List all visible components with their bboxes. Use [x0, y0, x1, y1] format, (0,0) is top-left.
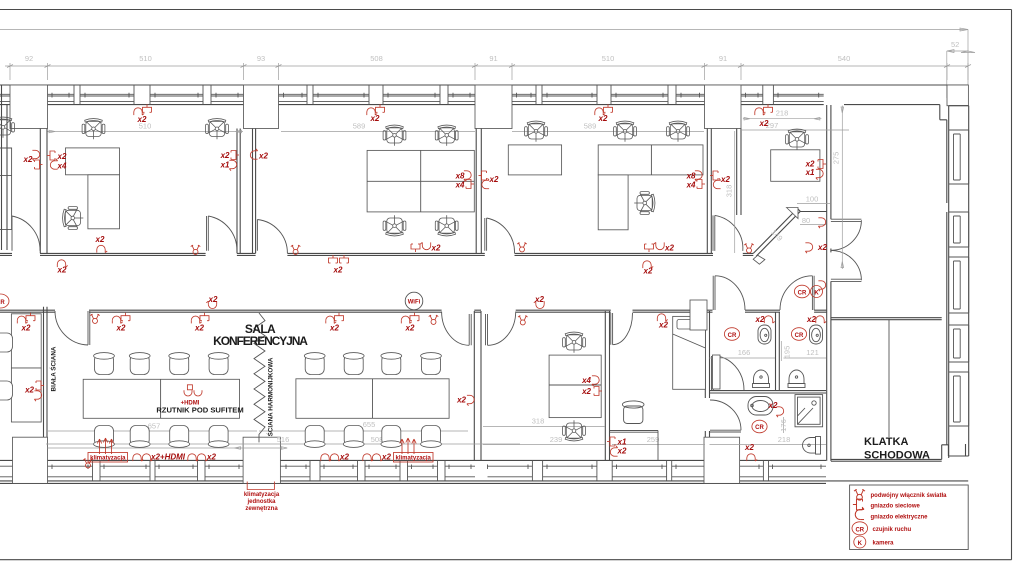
svg-text:176: 176: [779, 419, 788, 432]
svg-text:x2: x2: [720, 175, 730, 184]
svg-text:239: 239: [550, 435, 563, 444]
svg-text:318: 318: [725, 185, 734, 198]
svg-text:x2: x2: [329, 324, 339, 333]
svg-text:K: K: [814, 290, 819, 296]
svg-text:510: 510: [602, 54, 615, 63]
svg-text:gniazdo elektryczne: gniazdo elektryczne: [871, 515, 929, 521]
svg-text:CR: CR: [855, 527, 864, 533]
svg-text:195: 195: [783, 346, 792, 359]
svg-text:x2: x2: [768, 401, 778, 410]
svg-text:x2: x2: [208, 295, 218, 304]
svg-text:x2: x2: [759, 119, 769, 128]
svg-text:218: 218: [778, 435, 791, 444]
svg-text:x1: x1: [220, 161, 230, 170]
svg-text:czujnik ruchu: czujnik ruchu: [873, 527, 912, 533]
svg-text:CR: CR: [728, 333, 737, 339]
svg-text:x2+HDMI: x2+HDMI: [150, 453, 186, 462]
svg-text:x2: x2: [137, 115, 147, 124]
svg-text:92: 92: [25, 54, 33, 63]
svg-text:x2: x2: [744, 443, 754, 452]
svg-text:KONFERENCYJNA: KONFERENCYJNA: [213, 334, 308, 348]
svg-text:540: 540: [838, 54, 851, 63]
svg-text:x4: x4: [57, 162, 67, 171]
svg-text:x2: x2: [57, 152, 67, 161]
svg-text:gniazdo sieciowe: gniazdo sieciowe: [871, 504, 921, 510]
svg-text:x4: x4: [455, 181, 465, 190]
svg-text:x2: x2: [57, 266, 67, 275]
svg-text:x2: x2: [405, 324, 415, 333]
svg-text:R: R: [0, 300, 5, 306]
svg-text:x2: x2: [194, 324, 204, 333]
svg-text:WiFi: WiFi: [408, 300, 421, 306]
svg-text:218: 218: [776, 109, 789, 118]
svg-text:100: 100: [806, 195, 819, 204]
svg-text:x4: x4: [686, 181, 696, 190]
svg-text:kamera: kamera: [873, 541, 895, 547]
svg-text:x2: x2: [643, 267, 653, 276]
svg-text:91: 91: [719, 54, 727, 63]
svg-text:klimatyzacja: klimatyzacja: [244, 492, 280, 498]
svg-text:x2: x2: [21, 324, 31, 333]
svg-text:655: 655: [363, 420, 376, 429]
svg-text:91: 91: [489, 54, 497, 63]
svg-text:x2: x2: [755, 315, 765, 324]
svg-text:x2: x2: [220, 151, 230, 160]
svg-text:508: 508: [370, 54, 383, 63]
svg-text:KLATKA: KLATKA: [864, 436, 908, 448]
svg-text:CR: CR: [795, 333, 804, 339]
svg-text:52: 52: [951, 40, 959, 49]
svg-text:510: 510: [139, 54, 152, 63]
svg-text:x2: x2: [95, 235, 105, 244]
svg-text:x2: x2: [381, 453, 391, 462]
svg-text:CR: CR: [755, 425, 764, 431]
svg-text:657: 657: [148, 422, 161, 431]
svg-text:318: 318: [532, 417, 545, 426]
svg-text:SCHODOWA: SCHODOWA: [864, 449, 930, 461]
svg-text:x2: x2: [333, 266, 343, 275]
svg-text:x1: x1: [617, 438, 627, 447]
svg-text:x1: x1: [805, 168, 815, 177]
svg-text:275: 275: [832, 152, 841, 165]
svg-text:ŚCIANA HARMONIJKOWA: ŚCIANA HARMONIJKOWA: [266, 357, 275, 436]
svg-text:CR: CR: [798, 290, 807, 296]
svg-text:589: 589: [353, 122, 366, 131]
svg-text:x2: x2: [339, 453, 349, 462]
svg-text:zewnętrzna: zewnętrzna: [245, 506, 278, 512]
svg-text:RZUTNIK POD SUFITEM: RZUTNIK POD SUFITEM: [156, 406, 243, 415]
svg-text:podwójny włącznik światła: podwójny włącznik światła: [871, 493, 948, 499]
svg-text:589: 589: [584, 122, 597, 131]
svg-text:klimatyzacja: klimatyzacja: [90, 456, 126, 462]
svg-text:x2: x2: [456, 396, 466, 405]
svg-text:80: 80: [802, 216, 810, 225]
svg-text:x2: x2: [489, 175, 499, 184]
svg-text:x2: x2: [806, 315, 816, 324]
svg-text:166: 166: [738, 348, 751, 357]
svg-text:x8: x8: [686, 172, 696, 181]
svg-text:x2: x2: [664, 244, 674, 253]
svg-text:BIAŁA ŚCIANA: BIAŁA ŚCIANA: [49, 346, 58, 391]
svg-text:jednostka: jednostka: [246, 499, 276, 505]
svg-text:x2: x2: [116, 324, 126, 333]
svg-text:K: K: [858, 541, 863, 547]
svg-text:klimatyzacja: klimatyzacja: [396, 456, 432, 462]
svg-text:121: 121: [806, 348, 819, 357]
svg-text:x2: x2: [258, 152, 268, 161]
svg-text:x2: x2: [581, 387, 591, 396]
svg-text:x2: x2: [598, 114, 608, 123]
svg-text:x2: x2: [534, 295, 544, 304]
svg-text:93: 93: [257, 54, 265, 63]
svg-text:x2: x2: [23, 155, 33, 164]
svg-text:x4: x4: [581, 376, 591, 385]
svg-text:x8: x8: [455, 172, 465, 181]
svg-text:259: 259: [647, 435, 660, 444]
svg-text:x2: x2: [24, 386, 34, 395]
svg-text:x2: x2: [658, 321, 668, 330]
svg-text:x2: x2: [817, 243, 827, 252]
svg-text:x2: x2: [617, 447, 627, 456]
svg-text:516: 516: [277, 435, 290, 444]
svg-text:x2: x2: [431, 244, 441, 253]
svg-text:x2: x2: [206, 453, 216, 462]
svg-text:x2: x2: [370, 114, 380, 123]
